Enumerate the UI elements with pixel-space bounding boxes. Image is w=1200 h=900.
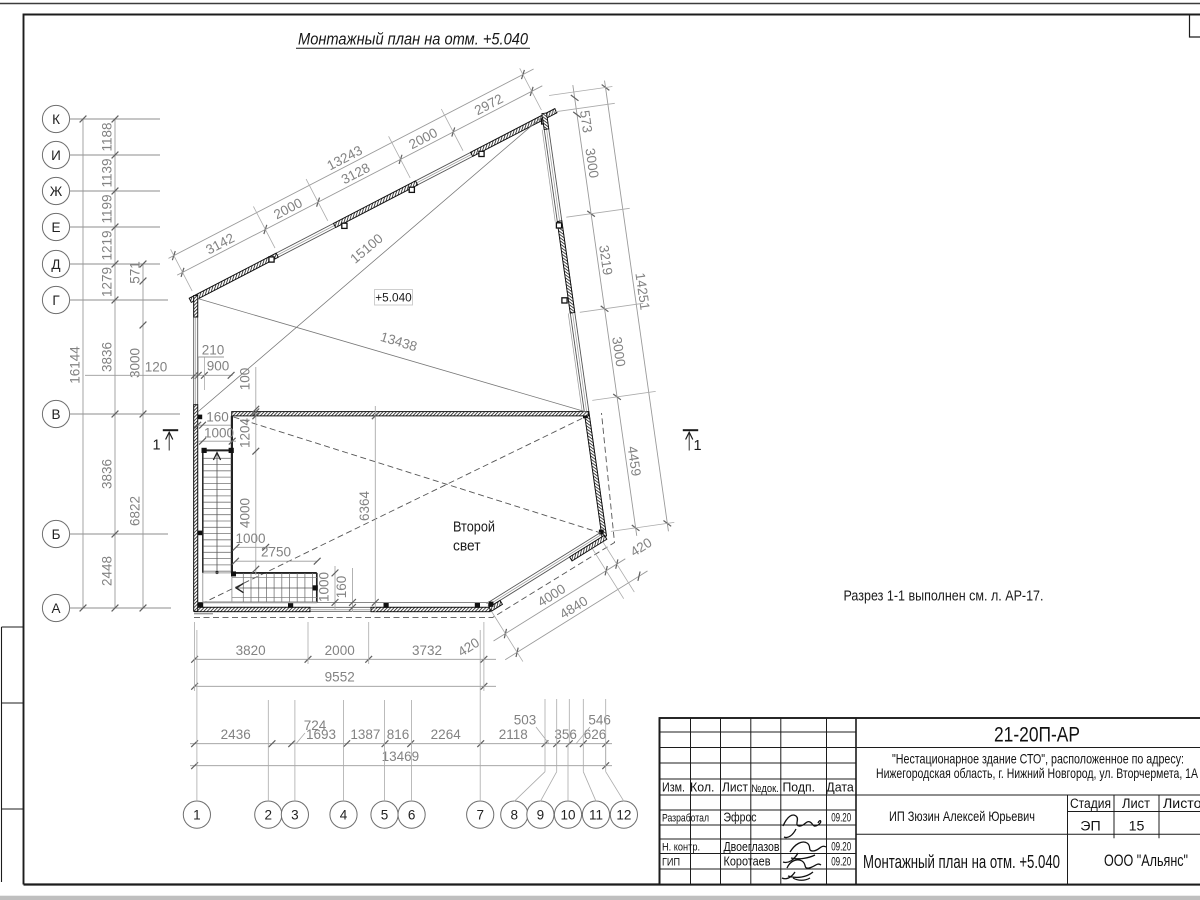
svg-text:2000: 2000 [325,643,355,658]
svg-text:1219: 1219 [100,230,115,260]
svg-text:И: И [51,148,61,163]
svg-text:9552: 9552 [325,670,355,685]
svg-text:21-20П-АР: 21-20П-АР [994,724,1080,747]
svg-text:Н. контр.: Н. контр. [662,842,700,854]
svg-text:8: 8 [511,807,519,822]
svg-text:2264: 2264 [431,727,462,742]
svg-text:10: 10 [560,807,575,822]
svg-text:А: А [51,601,60,616]
svg-text:5: 5 [381,807,389,822]
svg-text:160: 160 [206,410,229,425]
svg-text:Изм.: Изм. [662,779,685,794]
svg-text:09.20: 09.20 [831,842,851,854]
svg-text:7: 7 [476,807,484,822]
svg-text:Монтажный план на отм. +5.040: Монтажный план на отм. +5.040 [863,852,1060,872]
svg-text:Листов: Листов [1163,796,1200,811]
svg-text:"Нестационарное здание СТО", р: "Нестационарное здание СТО", расположенн… [892,751,1184,766]
svg-text:№док.: №док. [751,783,779,795]
svg-text:2436: 2436 [221,727,251,742]
svg-text:816: 816 [387,727,410,742]
svg-text:1: 1 [693,438,701,454]
svg-text:6364: 6364 [357,490,372,521]
svg-text:Второй: Второй [453,519,495,536]
svg-text:Лист: Лист [722,779,748,794]
svg-text:3732: 3732 [412,643,442,658]
svg-text:Эфрос: Эфрос [724,811,757,825]
svg-text:свет: свет [453,538,481,555]
svg-text:3836: 3836 [100,342,115,372]
svg-text:2: 2 [265,807,273,822]
svg-text:546: 546 [588,713,611,728]
svg-text:Лист: Лист [1122,796,1150,811]
svg-text:1188: 1188 [100,122,115,151]
svg-text:+5.040: +5.040 [375,290,412,304]
svg-text:ИП Зюзин Алексей Юрьевич: ИП Зюзин Алексей Юрьевич [889,809,1035,824]
svg-text:В: В [51,407,60,422]
svg-text:3836: 3836 [100,459,115,489]
svg-text:16144: 16144 [68,346,83,384]
svg-text:Разработал: Разработал [662,812,709,824]
svg-text:Монтажный план на отм. +5.040: Монтажный план на отм. +5.040 [298,31,529,49]
svg-text:573: 573 [577,109,595,133]
svg-text:Подп.: Подп. [783,779,816,794]
svg-text:160: 160 [334,576,349,599]
svg-text:Нижегородская область, г. Нижн: Нижегородская область, г. Нижний Новгоро… [876,766,1199,781]
svg-text:4: 4 [340,807,348,822]
svg-text:Кол.: Кол. [690,779,715,794]
svg-text:2750: 2750 [261,545,291,560]
svg-text:Дата: Дата [826,779,854,794]
svg-text:Коротаев: Коротаев [724,855,771,869]
svg-text:ЭП: ЭП [1080,819,1100,835]
svg-text:Д: Д [51,257,60,272]
svg-text:2448: 2448 [100,556,115,586]
svg-text:1387: 1387 [350,727,380,742]
svg-text:3000: 3000 [128,348,143,378]
svg-text:Двоеглазов: Двоеглазов [724,840,780,854]
svg-text:1: 1 [193,807,201,822]
svg-text:356: 356 [554,727,577,742]
svg-text:9: 9 [537,807,545,822]
svg-text:1000: 1000 [204,425,234,440]
svg-text:4000: 4000 [237,498,252,528]
svg-text:09.20: 09.20 [831,812,851,824]
svg-text:09.20: 09.20 [831,856,851,868]
svg-text:11: 11 [589,807,603,822]
svg-text:13469: 13469 [382,749,420,764]
svg-text:6822: 6822 [128,496,143,526]
svg-text:12: 12 [616,807,631,822]
svg-text:3: 3 [291,807,299,822]
svg-text:Стадия: Стадия [1070,796,1111,811]
svg-text:Разрез 1-1 выполнен см. л. АР-: Разрез 1-1 выполнен см. л. АР-17. [844,588,1044,605]
svg-text:ГИП: ГИП [662,856,680,868]
svg-text:571: 571 [128,261,143,284]
svg-text:15: 15 [1129,819,1145,835]
svg-text:К: К [52,112,60,127]
svg-text:100: 100 [237,368,252,391]
svg-text:503: 503 [514,713,537,728]
svg-text:900: 900 [207,359,230,374]
svg-text:1199: 1199 [100,194,115,223]
svg-text:ООО "Альянс": ООО "Альянс" [1104,852,1188,870]
svg-text:Г: Г [52,293,60,308]
svg-text:1204: 1204 [237,417,252,448]
svg-text:3820: 3820 [236,643,266,658]
svg-text:Б: Б [52,527,61,542]
svg-text:1139: 1139 [100,158,115,187]
svg-text:Е: Е [51,220,60,235]
svg-text:626: 626 [584,727,607,742]
svg-text:Ж: Ж [50,184,63,199]
svg-text:1279: 1279 [100,267,115,297]
svg-text:1: 1 [152,438,160,454]
svg-text:120: 120 [145,360,168,375]
svg-text:724: 724 [304,718,327,733]
svg-text:210: 210 [202,343,225,358]
svg-text:1000: 1000 [317,572,332,602]
svg-text:6: 6 [408,807,416,822]
svg-text:2118: 2118 [499,727,528,742]
